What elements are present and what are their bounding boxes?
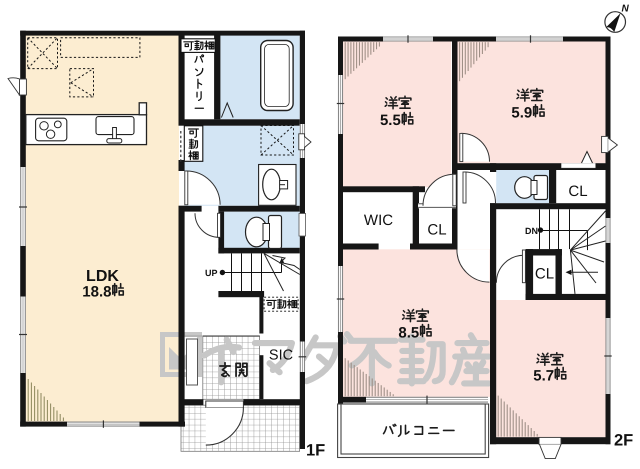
svg-text:DN: DN xyxy=(525,226,538,236)
svg-text:WIC: WIC xyxy=(364,212,393,229)
svg-text:5.5: 5.5 xyxy=(380,112,401,129)
svg-text:5.7: 5.7 xyxy=(533,368,554,385)
svg-text:N: N xyxy=(622,4,630,15)
svg-text:CL: CL xyxy=(568,183,587,200)
svg-text:5.9: 5.9 xyxy=(511,104,532,121)
svg-text:CL: CL xyxy=(535,266,554,283)
svg-text:1F: 1F xyxy=(306,442,325,460)
svg-text:CL: CL xyxy=(427,222,446,239)
svg-text:18.8: 18.8 xyxy=(82,284,111,301)
svg-text:LDK: LDK xyxy=(86,268,119,285)
svg-text:SIC: SIC xyxy=(269,348,293,364)
svg-text:8.5: 8.5 xyxy=(398,325,419,342)
svg-text:2F: 2F xyxy=(614,432,633,450)
svg-text:UP: UP xyxy=(205,268,218,278)
